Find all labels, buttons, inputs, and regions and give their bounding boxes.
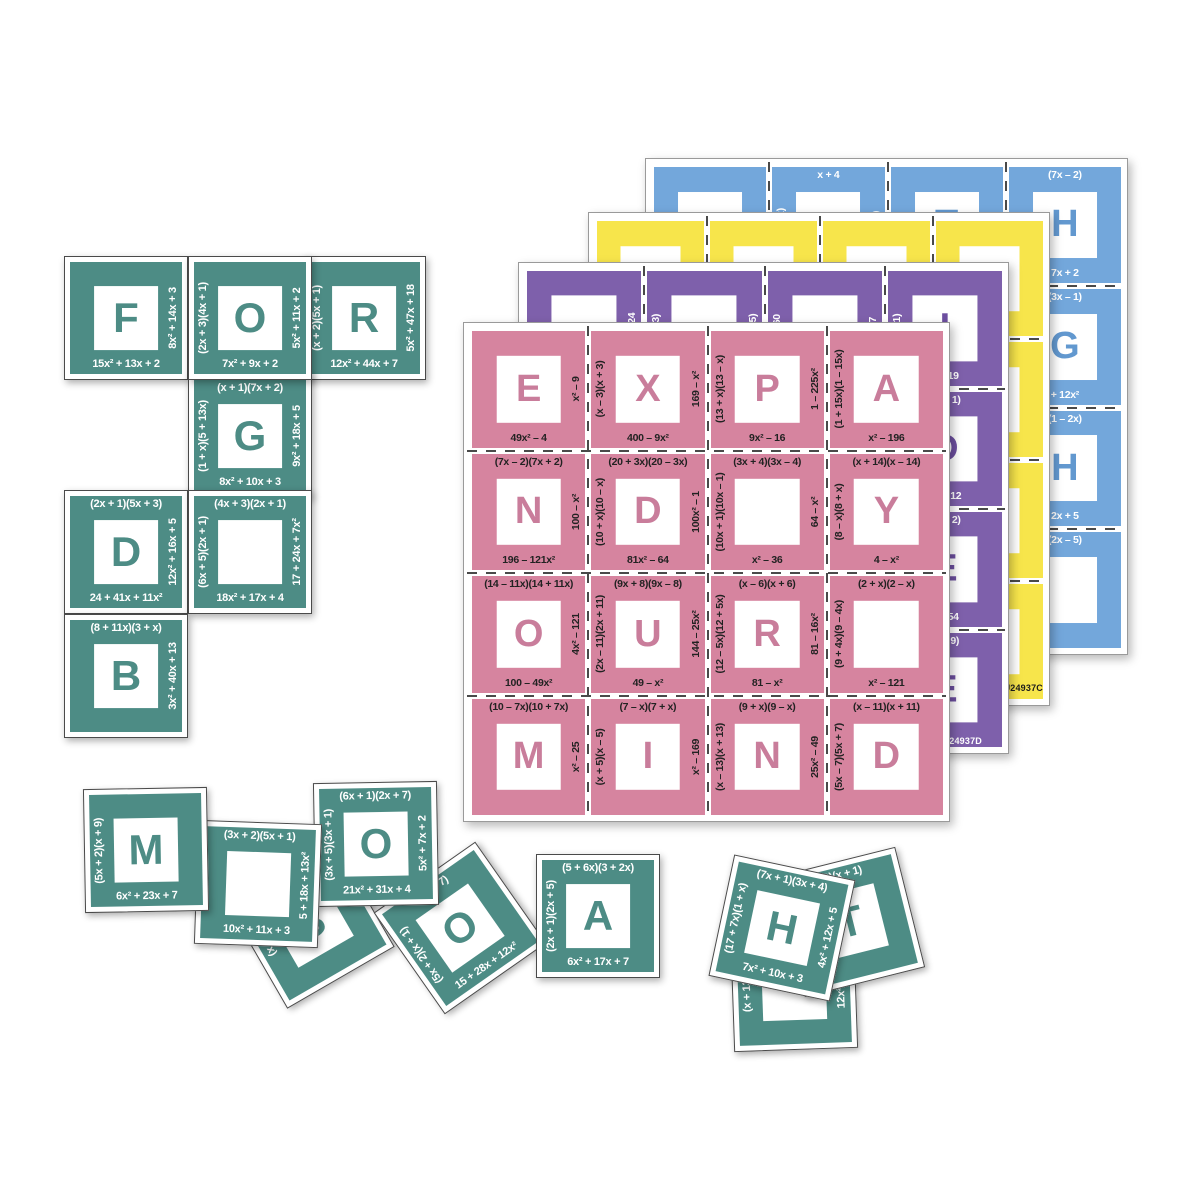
- green-card-M-letter-square: M: [114, 818, 179, 883]
- pink-card-r1c4-letter-square: A: [854, 356, 919, 422]
- green-card-G-expr-right: 9x² + 18x + 5: [291, 405, 303, 467]
- green-card-F: 15x² + 13x + 28x² + 14x + 3F: [64, 256, 188, 380]
- green-card-blank1-face: (4x + 3)(2x + 1)18x² + 17x + 4(6x + 5)(2…: [194, 496, 306, 608]
- pink-card-r2c4-letter-square: Y: [854, 479, 919, 545]
- green-card-A-expr-top: (5 + 6x)(3 + 2x): [542, 862, 654, 874]
- blue-card-r1c4-expr-top: (7x – 2): [1009, 169, 1121, 181]
- pink-card-r2c4-expr-left: (8 – x)(8 + x): [833, 483, 845, 540]
- pink-card-r3c4: (2 + x)(2 – x)x² – 121(9 + 4x)(9 – 4x): [830, 576, 943, 693]
- pink-card-r3c3-expr-right: 81 – 16x²: [809, 613, 821, 655]
- pink-card-r2c4-expr-bottom: 4 – x²: [830, 554, 943, 566]
- green-card-A-face: (5 + 6x)(3 + 2x)6x² + 17x + 7(2x + 1)(2x…: [542, 860, 654, 972]
- pink-card-r4c4-expr-left: (5x – 7)(5x + 7): [833, 723, 845, 791]
- green-card-blank1-expr-bottom: 18x² + 17x + 4: [194, 592, 306, 604]
- pink-card-r4c3-expr-top: (9 + x)(9 – x): [711, 701, 824, 713]
- green-card-M-expr-bottom: 6x² + 23x + 7: [91, 889, 203, 903]
- pink-card-r1c2: 400 – 9x²(x – 3)(x + 3)169 – x²X: [591, 331, 704, 448]
- green-card-O2-letter-square: O: [344, 812, 409, 877]
- green-card-G-letter-square: G: [218, 404, 282, 468]
- green-card-G: (x + 1)(7x + 2)8x² + 10x + 3(1 + x)(5 + …: [188, 374, 312, 498]
- green-card-H-face: (7x + 1)(3x + 4)7x² + 10x + 3(17 + 7x)(1…: [716, 862, 849, 995]
- green-card-D1-expr-bottom: 24 + 41x + 11x²: [70, 592, 182, 604]
- stage: + 3x²x + 4(1 – 3x)(x – 1)x + 8T(7x – 2)7…: [0, 0, 1200, 1200]
- pink-card-r3c3-expr-left: (12 – 5x)(12 + 5x): [714, 595, 726, 674]
- pink-card-r3c2-expr-right: 144 – 25x²: [690, 611, 702, 658]
- pink-card-r1c2-expr-right: 169 – x²: [690, 371, 702, 407]
- green-card-B-expr-right: 3x² + 40x + 13: [167, 642, 179, 709]
- pink-card-r2c3: (3x + 4)(3x – 4)x² – 36(10x + 1)(10x – 1…: [711, 454, 824, 571]
- green-card-A-letter-square: A: [566, 884, 630, 948]
- pink-card-r1c4-expr-bottom: x² – 196: [830, 432, 943, 444]
- pink-card-r4c1: (10 – 7x)(10 + 7x)x² – 25M: [472, 699, 585, 816]
- pink-card-r4c2-expr-top: (7 – x)(7 + x): [591, 701, 704, 713]
- green-card-H: (7x + 1)(3x + 4)7x² + 10x + 3(17 + 7x)(1…: [708, 854, 855, 1001]
- pink-card-r4c2: (7 – x)(7 + x)(x + 5)(x – 5)x² – 169I: [591, 699, 704, 816]
- pink-card-r4c1-letter-square: M: [496, 724, 561, 790]
- pink-card-r1c3-letter-square: P: [735, 356, 800, 422]
- pink-card-r4c1-expr-top: (10 – 7x)(10 + 7x): [472, 701, 585, 713]
- green-card-D1-letter-square: D: [94, 520, 158, 584]
- pink-card-r3c4-letter-square: [854, 601, 919, 667]
- green-card-O1-letter-square: O: [218, 286, 282, 350]
- green-card-blank2-expr-top: (3x + 2)(5x + 1): [203, 828, 315, 844]
- pink-card-r3c1-expr-top: (14 – 11x)(14 + 11x): [472, 578, 585, 590]
- blue-card-r1c2-expr-top: x + 4: [772, 169, 884, 181]
- cut-line-horizontal: [467, 695, 946, 697]
- pink-card-r2c2-expr-right: 100x² – 1: [690, 491, 702, 533]
- pink-card-r3c4-expr-top: (2 + x)(2 – x): [830, 578, 943, 590]
- pink-card-r1c3-expr-bottom: 9x² – 16: [711, 432, 824, 444]
- pink-card-r3c1-letter-square: O: [496, 601, 561, 667]
- pink-card-r4c3-expr-right: 25x² – 49: [809, 736, 821, 778]
- green-card-D1-expr-top: (2x + 1)(5x + 3): [70, 498, 182, 510]
- green-card-blank2-face: (3x + 2)(5x + 1)10x² + 11x + 35 + 18x + …: [200, 826, 316, 942]
- pink-card-r2c3-expr-left: (10x + 1)(10x – 1): [714, 472, 726, 551]
- green-card-O2: (6x + 1)(2x + 7)21x² + 31x + 4(3x + 5)(3…: [313, 781, 439, 907]
- pink-card-r4c3-expr-left: (x – 13)(x + 13): [714, 723, 726, 791]
- green-card-B-face: (8 + 11x)(3 + x)3x² + 40x + 13B: [70, 620, 182, 732]
- pink-card-r1c1: 49x² – 4x² – 9E: [472, 331, 585, 448]
- pink-card-r3c2: (9x + 8)(9x – 8)49 – x²(2x – 11)(2x + 11…: [591, 576, 704, 693]
- pink-card-r4c2-expr-left: (x + 5)(x – 5): [594, 728, 606, 785]
- green-card-O2-face: (6x + 1)(2x + 7)21x² + 31x + 4(3x + 5)(3…: [319, 787, 433, 901]
- green-card-G-face: (x + 1)(7x + 2)8x² + 10x + 3(1 + x)(5 + …: [194, 380, 306, 492]
- pink-card-r4c3: (9 + x)(9 – x)(x – 13)(x + 13)25x² – 49N: [711, 699, 824, 816]
- green-card-B-letter-square: B: [94, 644, 158, 708]
- pink-card-r4c4-expr-top: (x – 11)(x + 11): [830, 701, 943, 713]
- pink-card-r1c1-expr-bottom: 49x² – 4: [472, 432, 585, 444]
- pink-card-r3c4-expr-bottom: x² – 121: [830, 677, 943, 689]
- pink-card-r2c2: (20 + 3x)(20 – 3x)81x² – 64(10 + x)(10 –…: [591, 454, 704, 571]
- pink-card-r2c2-letter-square: D: [616, 479, 681, 545]
- pink-card-r4c2-expr-right: x² – 169: [690, 739, 702, 775]
- pink-card-r1c2-expr-left: (x – 3)(x + 3): [594, 361, 606, 418]
- pink-card-r2c1-expr-right: 100 – x²: [570, 494, 582, 530]
- green-card-M: 6x² + 23x + 7(5x + 2)(x + 9)M: [83, 787, 209, 913]
- pink-card-r2c2-expr-top: (20 + 3x)(20 – 3x): [591, 456, 704, 468]
- pink-card-r2c3-expr-top: (3x + 4)(3x – 4): [711, 456, 824, 468]
- sheet-code-yellow: U24937C: [1004, 683, 1043, 693]
- green-card-F-expr-right: 8x² + 14x + 3: [167, 287, 179, 349]
- pink-card-r1c1-letter-square: E: [496, 356, 561, 422]
- green-card-G-expr-bottom: 8x² + 10x + 3: [194, 476, 306, 488]
- pink-card-r2c4-expr-top: (x + 14)(x – 14): [830, 456, 943, 468]
- green-card-blank1-expr-top: (4x + 3)(2x + 1): [194, 498, 306, 510]
- pink-card-r1c3-expr-right: 1 – 225x²: [809, 368, 821, 410]
- green-card-O1-expr-bottom: 7x² + 9x + 2: [194, 358, 306, 370]
- pink-card-r2c1-expr-bottom: 196 – 121x²: [472, 554, 585, 566]
- pink-card-r1c2-letter-square: X: [616, 356, 681, 422]
- green-card-M-expr-left: (5x + 2)(x + 9): [92, 818, 105, 884]
- green-card-blank2-expr-right: 5 + 18x + 13x²: [298, 852, 312, 920]
- pink-card-r3c2-expr-left: (2x – 11)(2x + 11): [594, 595, 606, 673]
- green-card-R-expr-bottom: 12x² + 44x + 7: [308, 358, 420, 370]
- green-card-H-letter-square: H: [744, 890, 820, 966]
- green-card-O2-expr-bottom: 21x² + 31x + 4: [321, 883, 433, 897]
- green-card-D1: (2x + 1)(5x + 3)24 + 41x + 11x²12x² + 16…: [64, 490, 188, 614]
- green-card-R-expr-right: 5x² + 47x + 18: [405, 284, 417, 351]
- green-card-blank2: (3x + 2)(5x + 1)10x² + 11x + 35 + 18x + …: [194, 820, 322, 948]
- green-card-blank2-letter-square: [225, 851, 291, 917]
- pink-card-r2c3-expr-bottom: x² – 36: [711, 554, 824, 566]
- pink-card-r3c2-expr-bottom: 49 – x²: [591, 677, 704, 689]
- pink-card-r2c4: (x + 14)(x – 14)4 – x²(8 – x)(8 + x)Y: [830, 454, 943, 571]
- green-card-O1-expr-right: 5x² + 11x + 2: [291, 288, 303, 349]
- green-card-H-expr-right: 4x² + 12x + 5: [816, 906, 841, 969]
- pink-card-r1c4-expr-left: (1 + 15x)(1 – 15x): [833, 350, 845, 429]
- sheet-pink: 49x² – 4x² – 9E400 – 9x²(x – 3)(x + 3)16…: [463, 322, 950, 822]
- pink-card-r3c2-letter-square: U: [616, 601, 681, 667]
- green-card-O1-face: 7x² + 9x + 2(2x + 3)(4x + 1)5x² + 11x + …: [194, 262, 306, 374]
- pink-card-r3c3-expr-bottom: 81 – x²: [711, 677, 824, 689]
- green-card-A-expr-left: (2x + 1)(2x + 5): [545, 880, 557, 952]
- green-card-F-face: 15x² + 13x + 28x² + 14x + 3F: [70, 262, 182, 374]
- green-card-G-expr-left: (1 + x)(5 + 13x): [197, 400, 209, 472]
- pink-card-r4c1-expr-right: x² – 25: [570, 741, 582, 772]
- green-card-R: 12x² + 44x + 7(x + 2)(5x + 1)5x² + 47x +…: [302, 256, 426, 380]
- pink-card-r1c4: x² – 196(1 + 15x)(1 – 15x)A: [830, 331, 943, 448]
- pink-card-r4c3-letter-square: N: [735, 724, 800, 790]
- pink-card-r2c3-letter-square: [735, 479, 800, 545]
- green-card-blank2-expr-bottom: 10x² + 11x + 3: [200, 922, 312, 938]
- green-card-B: (8 + 11x)(3 + x)3x² + 40x + 13B: [64, 614, 188, 738]
- pink-card-r2c1: (7x – 2)(7x + 2)196 – 121x²100 – x²N: [472, 454, 585, 571]
- pink-card-r1c3: 9x² – 16(13 + x)(13 – x)1 – 225x²P: [711, 331, 824, 448]
- green-card-O1-expr-left: (2x + 3)(4x + 1): [197, 282, 209, 354]
- pink-card-r1c2-expr-bottom: 400 – 9x²: [591, 432, 704, 444]
- pink-card-r2c2-expr-bottom: 81x² – 64: [591, 554, 704, 566]
- pink-card-r1c1-expr-right: x² – 9: [570, 377, 582, 402]
- green-card-R-letter-square: R: [332, 286, 396, 350]
- green-card-D1-expr-right: 12x² + 16x + 5: [167, 518, 179, 585]
- green-card-F-letter-square: F: [94, 286, 158, 350]
- pink-card-r3c4-expr-left: (9 + 4x)(9 – 4x): [833, 600, 845, 668]
- pink-card-r3c3-letter-square: R: [735, 601, 800, 667]
- green-card-blank1: (4x + 3)(2x + 1)18x² + 17x + 4(6x + 5)(2…: [188, 490, 312, 614]
- green-card-D1-face: (2x + 1)(5x + 3)24 + 41x + 11x²12x² + 16…: [70, 496, 182, 608]
- pink-card-r2c2-expr-left: (10 + x)(10 – x): [594, 478, 606, 546]
- pink-card-r2c3-expr-right: 64 – x²: [809, 496, 821, 527]
- green-card-R-expr-left: (x + 2)(5x + 1): [311, 285, 323, 351]
- green-card-O1: 7x² + 9x + 2(2x + 3)(4x + 1)5x² + 11x + …: [188, 256, 312, 380]
- green-card-A: (5 + 6x)(3 + 2x)6x² + 17x + 7(2x + 1)(2x…: [536, 854, 660, 978]
- pink-card-r2c1-letter-square: N: [496, 479, 561, 545]
- pink-card-r3c3: (x – 6)(x + 6)81 – x²(12 – 5x)(12 + 5x)8…: [711, 576, 824, 693]
- green-card-O2-expr-top: (6x + 1)(2x + 7): [319, 789, 431, 803]
- pink-card-r4c4: (x – 11)(x + 11)(5x – 7)(5x + 7)D: [830, 699, 943, 816]
- green-card-B-expr-top: (8 + 11x)(3 + x): [70, 622, 182, 634]
- green-card-blank1-expr-right: 17 + 24x + 7x²: [291, 518, 303, 585]
- green-card-R-face: 12x² + 44x + 7(x + 2)(5x + 1)5x² + 47x +…: [308, 262, 420, 374]
- green-card-O2-expr-right: 5x² + 7x + 2: [417, 815, 430, 871]
- pink-card-r1c3-expr-left: (13 + x)(13 – x): [714, 355, 726, 423]
- green-card-A-expr-bottom: 6x² + 17x + 7: [542, 956, 654, 968]
- pink-card-r2c1-expr-top: (7x – 2)(7x + 2): [472, 456, 585, 468]
- pink-card-r3c1-expr-right: 4x² – 121: [570, 613, 582, 655]
- pink-card-r3c3-expr-top: (x – 6)(x + 6): [711, 578, 824, 590]
- green-card-blank1-expr-left: (6x + 5)(2x + 1): [197, 516, 209, 588]
- green-card-F-expr-bottom: 15x² + 13x + 2: [70, 358, 182, 370]
- cut-line-horizontal: [467, 572, 946, 574]
- pink-card-r3c1: (14 – 11x)(14 + 11x)100 – 49x²4x² – 121O: [472, 576, 585, 693]
- green-card-G-expr-top: (x + 1)(7x + 2): [194, 382, 306, 394]
- green-card-blank1-letter-square: [218, 520, 282, 584]
- pink-card-r3c2-expr-top: (9x + 8)(9x – 8): [591, 578, 704, 590]
- pink-card-r3c1-expr-bottom: 100 – 49x²: [472, 677, 585, 689]
- green-card-O2-expr-left: (3x + 5)(3x + 1): [322, 809, 335, 881]
- green-card-M-face: 6x² + 23x + 7(5x + 2)(x + 9)M: [89, 793, 203, 907]
- cut-line-vertical: [826, 326, 828, 818]
- pink-card-r4c2-letter-square: I: [616, 724, 681, 790]
- pink-card-r4c4-letter-square: D: [854, 724, 919, 790]
